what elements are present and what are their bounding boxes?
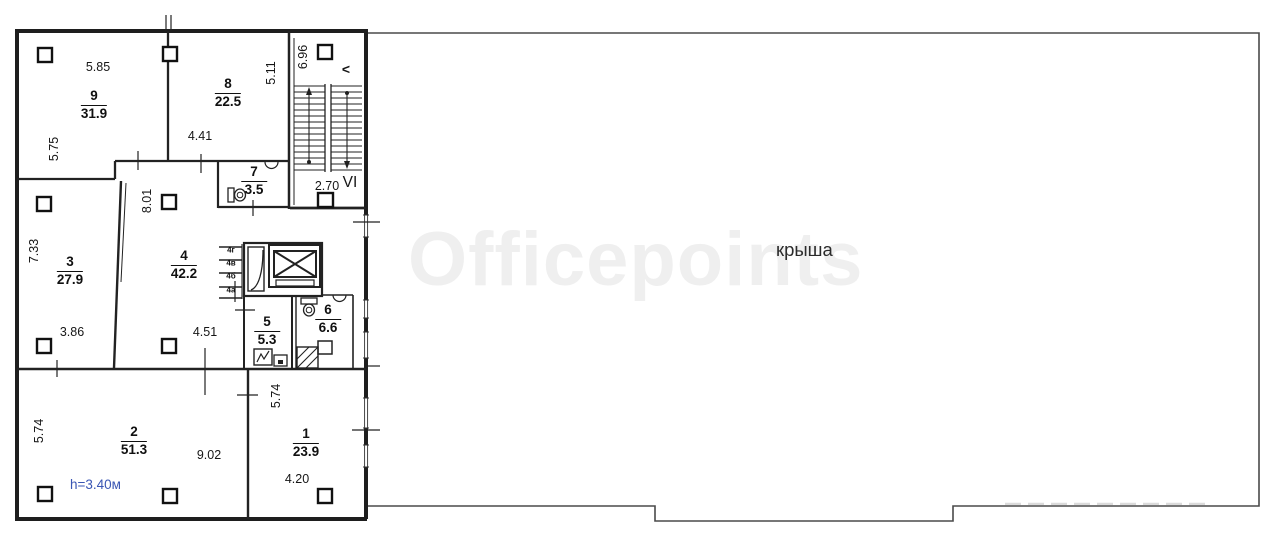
room-area: 5.3 [254,332,280,348]
dim-room8-bottom: 4.41 [188,129,212,143]
shaft-label-4a: 4а [227,286,236,295]
room-area: 42.2 [171,266,197,282]
shaft-label-4v: 4в [226,259,235,268]
room-label-4: 4 42.2 [171,249,197,281]
dim-room8-right: 5.11 [264,61,278,84]
dim-room2-bottom: 9.02 [197,448,221,462]
room-number: 4 [171,249,197,266]
room-area: 31.9 [81,106,107,122]
room-label-1: 1 23.9 [293,427,319,459]
room-label-6: 6 6.6 [315,303,341,335]
room-label-9: 9 31.9 [81,89,107,121]
room-number: 5 [254,315,280,332]
stair-direction-mark: < [342,61,350,77]
dim-room4-left: 8.01 [140,189,154,213]
room-label-2: 2 51.3 [121,425,147,457]
floor-plan-page: Officepoints [0,0,1280,546]
room-area: 3.5 [241,182,267,198]
room-label-5: 5 5.3 [254,315,280,347]
dim-room1-bottom: 4.20 [285,472,309,486]
room-label-3: 3 27.9 [57,255,83,287]
dim-room3-bottom: 3.86 [60,325,84,339]
room-area: 22.5 [215,94,241,110]
room-label-7: 7 3.5 [241,165,267,197]
room-number: 8 [215,77,241,94]
shaft-label-4b: 4б [226,272,235,281]
room-number: 7 [241,165,267,182]
ceiling-height-note: h=3.40м [70,477,121,492]
room-number: 1 [293,427,319,444]
room-area: 6.6 [315,320,341,336]
room-number: 3 [57,255,83,272]
room-area: 27.9 [57,272,83,288]
staircase [294,84,362,172]
dim-landing-width: 2.70 [315,179,339,193]
dim-room3-left: 7.33 [27,239,41,263]
dim-room4-bottom: 4.51 [193,325,217,339]
room-number: 2 [121,425,147,442]
roof-outline [366,33,1259,521]
room-label-8: 8 22.5 [215,77,241,109]
dim-room1-left: 5.74 [269,384,283,408]
room-number: 6 [315,303,341,320]
dim-room9-top: 5.85 [86,60,110,74]
room-number: 9 [81,89,107,106]
stair-section-mark: VI [343,174,358,192]
roof-area-label: крыша [776,239,833,261]
room-area: 23.9 [293,444,319,460]
dim-stair-width: 6.96 [296,45,310,69]
room-area: 51.3 [121,442,147,458]
dim-room2-left: 5.74 [32,419,46,443]
dim-room9-left: 5.75 [47,137,61,161]
shaft-label-4g: 4г [227,246,235,255]
